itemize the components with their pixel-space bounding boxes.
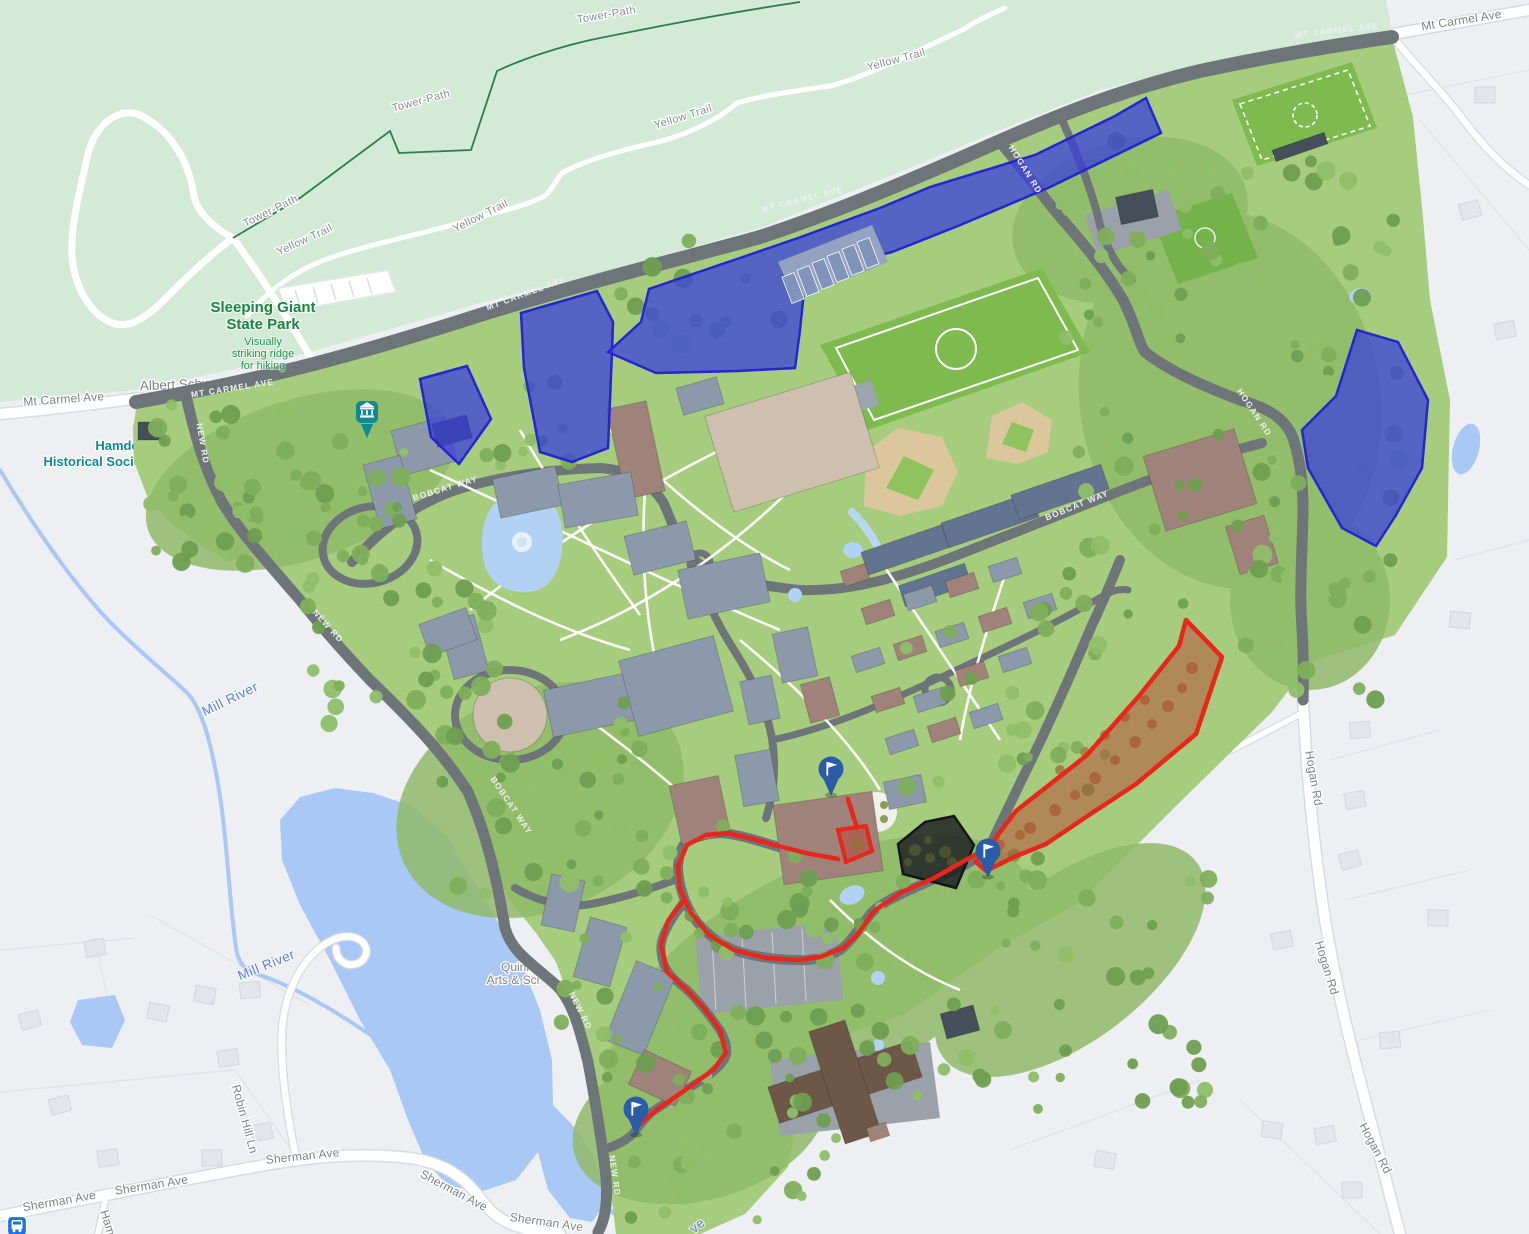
tree bbox=[691, 1024, 707, 1040]
tree bbox=[1122, 433, 1133, 444]
tree bbox=[151, 546, 161, 556]
tree bbox=[805, 918, 825, 938]
tree bbox=[483, 741, 501, 759]
tree bbox=[614, 820, 627, 833]
tree bbox=[552, 759, 563, 770]
tree bbox=[1318, 375, 1336, 393]
tree bbox=[780, 1011, 792, 1023]
tree bbox=[1191, 1057, 1206, 1072]
tree bbox=[1203, 160, 1215, 172]
tree bbox=[965, 672, 978, 685]
tree bbox=[455, 579, 473, 597]
tree bbox=[1008, 898, 1020, 910]
tree bbox=[1094, 249, 1109, 264]
tree bbox=[824, 917, 839, 932]
tree bbox=[1281, 570, 1295, 584]
tree bbox=[1339, 172, 1357, 190]
tree bbox=[214, 473, 232, 491]
tree bbox=[968, 871, 986, 889]
tree bbox=[307, 664, 319, 676]
house bbox=[194, 985, 216, 1004]
tree bbox=[369, 517, 384, 532]
tree bbox=[661, 892, 673, 904]
tree bbox=[792, 902, 808, 918]
house bbox=[1349, 721, 1370, 739]
tree bbox=[1211, 186, 1226, 201]
tree bbox=[722, 897, 732, 907]
tree bbox=[1056, 1073, 1065, 1082]
tree bbox=[1028, 1071, 1039, 1082]
house bbox=[1314, 1125, 1336, 1144]
tree bbox=[374, 564, 385, 575]
tree bbox=[731, 1005, 746, 1020]
tree bbox=[1127, 283, 1146, 302]
tree bbox=[1200, 870, 1218, 888]
tree bbox=[1078, 889, 1095, 906]
tree bbox=[1030, 940, 1040, 950]
tree bbox=[1311, 341, 1325, 355]
tree bbox=[1250, 560, 1268, 578]
tree bbox=[793, 1093, 812, 1112]
tree bbox=[753, 1215, 762, 1224]
tree bbox=[320, 502, 330, 512]
tree bbox=[560, 873, 580, 893]
tree bbox=[1015, 721, 1032, 738]
tree bbox=[1124, 609, 1133, 618]
tree bbox=[1269, 533, 1280, 544]
house bbox=[217, 1049, 239, 1068]
tree bbox=[636, 880, 653, 897]
tree bbox=[933, 776, 945, 788]
tree bbox=[1232, 520, 1245, 533]
tree bbox=[306, 530, 322, 546]
tree bbox=[991, 1006, 1000, 1015]
tree bbox=[1283, 164, 1300, 181]
tree bbox=[698, 886, 709, 897]
tree bbox=[383, 590, 399, 606]
tree bbox=[579, 772, 595, 788]
tree bbox=[1058, 947, 1074, 963]
tree bbox=[427, 561, 443, 577]
tree bbox=[1353, 289, 1371, 307]
tree bbox=[785, 1073, 794, 1082]
tree bbox=[1062, 567, 1076, 581]
tree bbox=[1075, 595, 1092, 612]
tree bbox=[1267, 455, 1276, 464]
tree bbox=[1106, 333, 1116, 343]
tree bbox=[739, 925, 754, 940]
tree bbox=[166, 399, 177, 410]
tree bbox=[1093, 317, 1103, 327]
tree bbox=[628, 1156, 641, 1169]
tree bbox=[594, 811, 603, 820]
tree bbox=[1147, 920, 1157, 930]
tree bbox=[789, 1047, 807, 1065]
tree bbox=[1110, 915, 1124, 929]
tree bbox=[1194, 1095, 1207, 1108]
tree bbox=[957, 890, 969, 902]
tree bbox=[816, 1113, 831, 1128]
flag-icon bbox=[631, 1102, 633, 1116]
tree bbox=[673, 1073, 685, 1085]
house bbox=[1094, 1150, 1116, 1169]
house bbox=[1379, 1031, 1400, 1049]
tree bbox=[636, 1054, 655, 1073]
tree bbox=[236, 554, 255, 573]
tree bbox=[879, 871, 893, 885]
flag-icon bbox=[826, 762, 828, 776]
tree bbox=[1288, 682, 1304, 698]
tree bbox=[1354, 616, 1372, 634]
tree bbox=[477, 601, 497, 621]
tree bbox=[1179, 201, 1191, 213]
tree bbox=[1281, 615, 1290, 624]
tree bbox=[653, 983, 662, 992]
tree bbox=[1176, 333, 1186, 343]
tree bbox=[406, 690, 426, 710]
tree bbox=[1050, 747, 1067, 764]
tree bbox=[614, 717, 628, 731]
house bbox=[1342, 1182, 1362, 1198]
tree bbox=[901, 1036, 920, 1055]
tree bbox=[856, 953, 874, 971]
tree bbox=[1079, 278, 1091, 290]
tree bbox=[1148, 1014, 1168, 1034]
house bbox=[202, 1150, 222, 1166]
tree bbox=[800, 869, 818, 887]
tree bbox=[446, 727, 464, 745]
tree bbox=[432, 597, 443, 608]
tree bbox=[1146, 251, 1155, 260]
tree bbox=[1366, 690, 1384, 708]
tree bbox=[356, 553, 368, 565]
tree bbox=[1213, 429, 1224, 440]
tree bbox=[572, 980, 581, 989]
tree bbox=[169, 475, 187, 493]
tree bbox=[1130, 970, 1146, 986]
tree bbox=[1175, 480, 1185, 490]
tree bbox=[1149, 523, 1161, 535]
tree bbox=[912, 1090, 922, 1100]
tree bbox=[596, 988, 613, 1005]
tree bbox=[1073, 446, 1085, 458]
tree bbox=[1178, 598, 1189, 609]
tree bbox=[886, 1072, 904, 1090]
tree bbox=[620, 931, 632, 943]
tree bbox=[1100, 407, 1110, 417]
tree bbox=[1106, 967, 1125, 986]
tree bbox=[746, 1006, 765, 1025]
tree bbox=[831, 1133, 841, 1143]
tree bbox=[368, 469, 386, 487]
tree bbox=[253, 514, 263, 524]
tree bbox=[1121, 271, 1136, 286]
tree bbox=[681, 1155, 697, 1171]
tree bbox=[1060, 587, 1073, 600]
tree bbox=[1339, 578, 1351, 590]
tree bbox=[290, 469, 302, 481]
tree bbox=[1097, 228, 1115, 246]
tree bbox=[1254, 278, 1268, 292]
tree bbox=[1030, 603, 1049, 622]
house bbox=[1428, 910, 1448, 926]
tree bbox=[1316, 161, 1335, 180]
house bbox=[1344, 790, 1366, 809]
tree bbox=[612, 773, 624, 785]
tree bbox=[148, 418, 167, 437]
tree bbox=[643, 257, 663, 277]
tree bbox=[181, 515, 190, 524]
tree bbox=[617, 754, 627, 764]
tree bbox=[1182, 1096, 1195, 1109]
tree bbox=[409, 646, 421, 658]
tree bbox=[181, 541, 198, 558]
house bbox=[239, 981, 260, 999]
tree bbox=[593, 875, 604, 886]
park-desc-line1: Visually bbox=[244, 336, 282, 348]
tree bbox=[633, 858, 649, 874]
tree bbox=[1125, 165, 1139, 179]
tree bbox=[859, 1040, 875, 1056]
tree bbox=[493, 444, 511, 462]
house bbox=[1449, 611, 1470, 629]
tree bbox=[668, 1178, 678, 1188]
tree bbox=[437, 776, 449, 788]
tree bbox=[1363, 570, 1375, 582]
tree bbox=[807, 1167, 821, 1181]
tree bbox=[1305, 156, 1317, 168]
tree bbox=[423, 644, 442, 663]
tree bbox=[947, 998, 961, 1012]
tree bbox=[627, 298, 644, 315]
house bbox=[1271, 930, 1294, 950]
tree bbox=[1332, 226, 1350, 244]
tree bbox=[613, 1035, 622, 1044]
tree bbox=[679, 1141, 692, 1154]
park-desc-line2: striking ridge bbox=[232, 348, 294, 360]
tree bbox=[602, 1072, 613, 1083]
house bbox=[84, 938, 106, 957]
tree bbox=[479, 888, 491, 900]
tree bbox=[480, 448, 494, 462]
tree bbox=[392, 513, 406, 527]
tree bbox=[618, 697, 631, 710]
house bbox=[1494, 320, 1516, 339]
tree bbox=[1253, 216, 1268, 231]
tree bbox=[554, 1015, 569, 1030]
tree bbox=[143, 496, 158, 511]
tree bbox=[742, 903, 762, 923]
transit-stop-icon[interactable] bbox=[8, 1217, 27, 1234]
house bbox=[1475, 87, 1495, 103]
tree bbox=[1147, 305, 1164, 322]
tree bbox=[524, 863, 542, 881]
tree bbox=[1076, 190, 1088, 202]
tree bbox=[676, 1019, 689, 1032]
house bbox=[1261, 1121, 1283, 1140]
tree bbox=[337, 550, 350, 563]
tree bbox=[625, 1211, 637, 1223]
tree bbox=[659, 1206, 672, 1219]
tree bbox=[1201, 892, 1214, 905]
quinnipiac-label-line2: Arts & Sci bbox=[487, 973, 540, 987]
tree bbox=[232, 505, 245, 518]
tree bbox=[210, 411, 223, 424]
tree bbox=[702, 1083, 713, 1094]
tree bbox=[357, 514, 370, 527]
tree bbox=[168, 491, 179, 502]
tree bbox=[449, 877, 467, 895]
tree bbox=[501, 754, 520, 773]
tree bbox=[663, 845, 678, 860]
tree bbox=[877, 1052, 892, 1067]
tree bbox=[1188, 478, 1202, 492]
tree bbox=[1164, 155, 1180, 171]
tree bbox=[810, 1008, 828, 1026]
tree bbox=[1019, 870, 1032, 883]
tree bbox=[486, 660, 503, 677]
tree bbox=[216, 426, 230, 440]
tree bbox=[497, 714, 513, 730]
flag-icon bbox=[983, 844, 985, 858]
tree bbox=[1238, 637, 1254, 653]
tree bbox=[900, 642, 913, 655]
tree bbox=[391, 468, 410, 487]
tree bbox=[221, 405, 240, 424]
tree bbox=[998, 755, 1016, 773]
tree bbox=[526, 779, 535, 788]
tree bbox=[1329, 582, 1339, 592]
tree bbox=[929, 885, 939, 895]
tree bbox=[677, 1190, 691, 1204]
tree bbox=[755, 1032, 772, 1049]
map-canvas[interactable]: HamdenHistorical SocietyAlbert SchwQuinn… bbox=[0, 0, 1529, 1234]
tree bbox=[276, 442, 294, 460]
tree bbox=[244, 479, 261, 496]
tree bbox=[518, 447, 528, 457]
tree bbox=[458, 686, 472, 700]
tree bbox=[440, 685, 453, 698]
tree bbox=[801, 886, 812, 897]
tree bbox=[1290, 340, 1299, 349]
tree bbox=[1024, 753, 1033, 762]
tree bbox=[797, 1191, 807, 1201]
tree bbox=[996, 881, 1005, 890]
tree bbox=[370, 690, 383, 703]
tree bbox=[726, 1123, 742, 1139]
tree bbox=[770, 1166, 780, 1176]
tree bbox=[1291, 350, 1303, 362]
tree bbox=[524, 434, 537, 447]
tree bbox=[580, 934, 590, 944]
tree bbox=[300, 476, 315, 491]
tree bbox=[247, 528, 262, 543]
tree bbox=[1114, 457, 1133, 476]
tree bbox=[994, 1021, 1012, 1039]
tree bbox=[495, 817, 512, 834]
tree bbox=[819, 1150, 830, 1161]
tree bbox=[334, 680, 345, 691]
tree bbox=[898, 778, 916, 796]
tree bbox=[1088, 390, 1098, 400]
tree bbox=[1381, 246, 1392, 257]
tree bbox=[1353, 682, 1366, 695]
tree bbox=[567, 859, 577, 869]
tree bbox=[416, 582, 432, 598]
tree bbox=[332, 433, 349, 450]
house bbox=[97, 1149, 119, 1168]
tree bbox=[1201, 242, 1220, 261]
tree bbox=[869, 922, 880, 933]
tree bbox=[1291, 475, 1307, 491]
tree bbox=[296, 532, 308, 544]
tree bbox=[1186, 1040, 1201, 1055]
tree bbox=[1127, 1058, 1138, 1069]
tree bbox=[596, 1026, 612, 1042]
tree bbox=[593, 748, 612, 767]
tree bbox=[1185, 875, 1196, 886]
tree bbox=[1135, 1093, 1151, 1109]
tree bbox=[1084, 310, 1094, 320]
tree bbox=[1091, 536, 1110, 555]
tree bbox=[216, 532, 234, 550]
tree bbox=[1062, 201, 1077, 216]
tree bbox=[871, 1022, 889, 1040]
tree bbox=[1383, 553, 1397, 567]
tree bbox=[321, 715, 338, 732]
tree bbox=[1235, 263, 1246, 274]
tree bbox=[1182, 228, 1193, 239]
tree bbox=[399, 448, 408, 457]
tree bbox=[682, 234, 696, 248]
tree bbox=[881, 955, 892, 966]
tree bbox=[938, 1063, 951, 1076]
tree bbox=[768, 1049, 782, 1063]
tree bbox=[943, 625, 956, 638]
tree bbox=[1387, 214, 1400, 227]
tree bbox=[1054, 999, 1065, 1010]
tree bbox=[1033, 1104, 1043, 1114]
tree bbox=[303, 580, 316, 593]
tree bbox=[614, 287, 627, 300]
tree bbox=[1253, 463, 1271, 481]
tree bbox=[327, 699, 344, 716]
tree bbox=[851, 1004, 865, 1018]
tree bbox=[1178, 511, 1188, 521]
tree bbox=[418, 672, 434, 688]
tree bbox=[1174, 288, 1187, 301]
tree bbox=[701, 1144, 713, 1156]
tree bbox=[471, 676, 491, 696]
tree bbox=[958, 1049, 975, 1066]
tree bbox=[278, 403, 297, 422]
tree bbox=[392, 502, 402, 512]
tree bbox=[1038, 620, 1055, 637]
tree bbox=[1130, 232, 1146, 248]
tree bbox=[660, 866, 674, 880]
tree bbox=[822, 933, 834, 945]
tree bbox=[1105, 439, 1121, 455]
tree bbox=[1170, 1078, 1188, 1096]
tree bbox=[631, 741, 647, 757]
tree bbox=[1031, 851, 1045, 865]
tree bbox=[1005, 686, 1019, 700]
tree bbox=[358, 487, 368, 497]
tree bbox=[575, 820, 591, 836]
tree bbox=[1270, 642, 1286, 658]
tree bbox=[1241, 166, 1254, 179]
tree bbox=[1089, 636, 1107, 654]
